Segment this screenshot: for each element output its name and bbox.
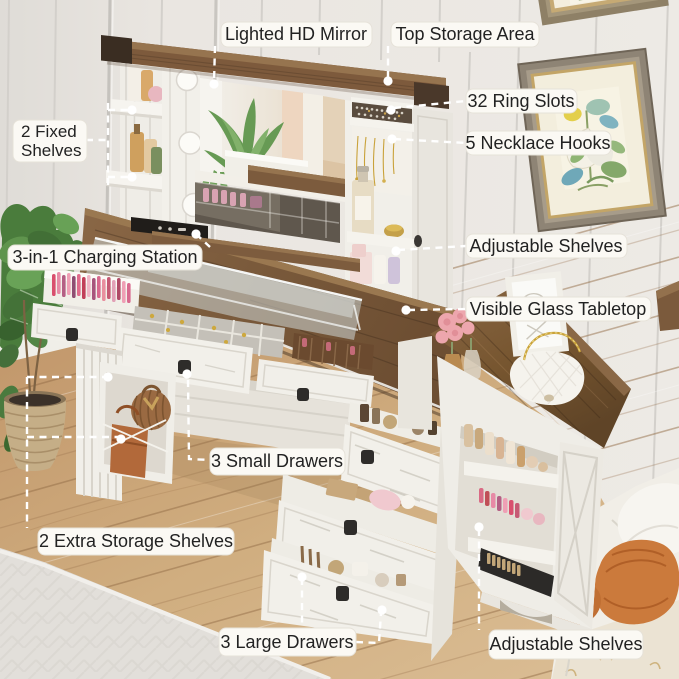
svg-text:Shelves: Shelves: [21, 141, 81, 160]
svg-text:Adjustable Shelves: Adjustable Shelves: [489, 634, 642, 654]
svg-text:3-in-1 Charging Station: 3-in-1 Charging Station: [12, 247, 197, 267]
svg-text:5 Necklace Hooks: 5 Necklace Hooks: [465, 133, 610, 153]
svg-text:3 Small Drawers: 3 Small Drawers: [211, 451, 343, 471]
svg-text:3 Large Drawers: 3 Large Drawers: [220, 632, 353, 652]
svg-text:32 Ring Slots: 32 Ring Slots: [467, 91, 574, 111]
svg-text:Lighted HD Mirror: Lighted HD Mirror: [225, 24, 367, 44]
svg-text:Top Storage Area: Top Storage Area: [395, 24, 535, 44]
svg-text:2 Fixed: 2 Fixed: [21, 122, 77, 141]
svg-text:Adjustable Shelves: Adjustable Shelves: [469, 236, 622, 256]
svg-text:2 Extra Storage Shelves: 2 Extra Storage Shelves: [39, 531, 233, 551]
svg-text:Visible Glass Tabletop: Visible Glass Tabletop: [470, 299, 646, 319]
